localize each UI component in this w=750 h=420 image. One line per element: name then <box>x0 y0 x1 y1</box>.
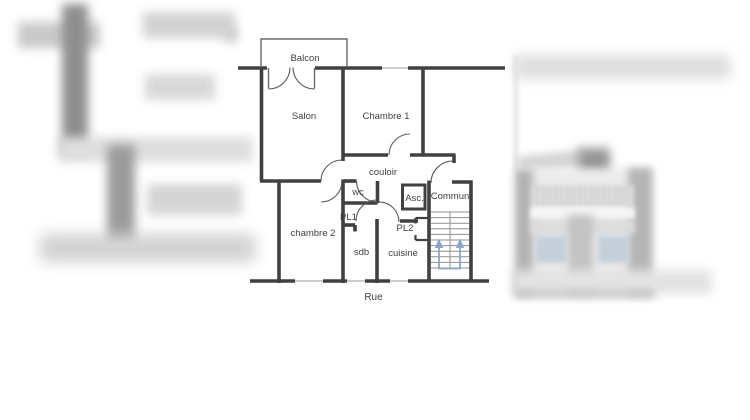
room-label-salon: Salon <box>292 111 316 122</box>
room-label-chambre2: chambre 2 <box>291 228 336 239</box>
room-label-pl1: PL1 <box>340 212 357 223</box>
room-label-balcon: Balcon <box>290 53 319 64</box>
staircase <box>431 212 469 269</box>
room-labels: Balcon Salon Chambre 1 couloir wc Asc. C… <box>290 53 469 303</box>
room-label-asc: Asc. <box>405 193 423 204</box>
balcony-door-right-arc <box>293 68 315 90</box>
room-label-pl2: PL2 <box>397 223 414 234</box>
page: Balcon Salon Chambre 1 couloir wc Asc. C… <box>0 0 750 420</box>
floor-plan: Balcon Salon Chambre 1 couloir wc Asc. C… <box>0 0 750 420</box>
room-label-chambre1: Chambre 1 <box>363 111 410 122</box>
room-label-commun: Commun <box>431 191 470 202</box>
balcony-door-left-arc <box>269 68 291 90</box>
room-label-cuisine: cuisine <box>388 248 418 259</box>
room-label-sdb: sdb <box>354 247 369 258</box>
cuisine-door-arc <box>379 202 399 222</box>
stair-steps <box>431 212 469 268</box>
chambre1-door-arc <box>389 134 410 155</box>
street-label-rue: Rue <box>364 292 383 303</box>
chambre2-door-arc <box>321 181 342 202</box>
room-label-couloir: couloir <box>369 167 397 178</box>
salon-door-arc <box>321 160 342 181</box>
room-label-wc: wc <box>351 187 364 198</box>
commun-door-arc <box>431 161 453 183</box>
